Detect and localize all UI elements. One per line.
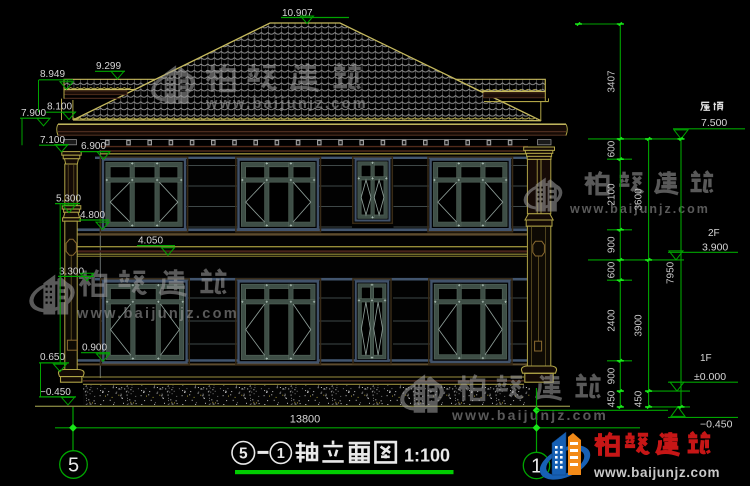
svg-text:3.300: 3.300 [59, 266, 84, 277]
svg-text:6.900: 6.900 [81, 141, 106, 152]
svg-text:9.299: 9.299 [96, 61, 121, 72]
svg-text:www.baijunjz.com: www.baijunjz.com [76, 306, 239, 322]
svg-text:1:100: 1:100 [404, 446, 450, 466]
svg-text:3600: 3600 [634, 188, 645, 211]
svg-text:www.baijunjz.com: www.baijunjz.com [593, 465, 720, 480]
svg-text:1: 1 [277, 446, 285, 462]
svg-text:2F: 2F [708, 228, 720, 239]
svg-text:600: 600 [607, 261, 618, 278]
svg-text:5: 5 [239, 446, 248, 463]
svg-text:8.949: 8.949 [40, 69, 65, 80]
svg-text:3900: 3900 [634, 314, 645, 337]
svg-text:−0.450: −0.450 [700, 419, 733, 431]
svg-text:900: 900 [607, 236, 618, 253]
svg-text:900: 900 [607, 367, 618, 384]
svg-text:450: 450 [607, 390, 618, 407]
svg-text:3.900: 3.900 [702, 242, 728, 254]
svg-text:450: 450 [634, 390, 645, 407]
svg-text:7950: 7950 [666, 261, 677, 284]
svg-text:13800: 13800 [290, 414, 321, 426]
svg-text:7.900: 7.900 [21, 108, 46, 119]
svg-text:4.050: 4.050 [138, 235, 163, 246]
svg-text:www.baijunjz.com: www.baijunjz.com [451, 407, 608, 423]
svg-text:1F: 1F [700, 353, 712, 364]
svg-text:www.baijunjz.com: www.baijunjz.com [205, 96, 368, 112]
svg-text:0.650: 0.650 [40, 352, 65, 363]
svg-text:5.300: 5.300 [56, 194, 81, 205]
svg-text:8.100: 8.100 [47, 102, 72, 113]
svg-text:600: 600 [607, 140, 618, 157]
svg-text:1: 1 [531, 456, 542, 478]
svg-text:7.500: 7.500 [701, 117, 727, 129]
svg-text:±0.000: ±0.000 [694, 371, 726, 383]
svg-text:2100: 2100 [607, 183, 618, 206]
svg-text:−0.450: −0.450 [40, 387, 71, 398]
svg-text:5: 5 [68, 455, 79, 477]
svg-text:3407: 3407 [607, 70, 618, 93]
svg-text:2400: 2400 [607, 309, 618, 332]
svg-text:4.800: 4.800 [80, 210, 105, 221]
svg-text:0.900: 0.900 [82, 342, 107, 353]
